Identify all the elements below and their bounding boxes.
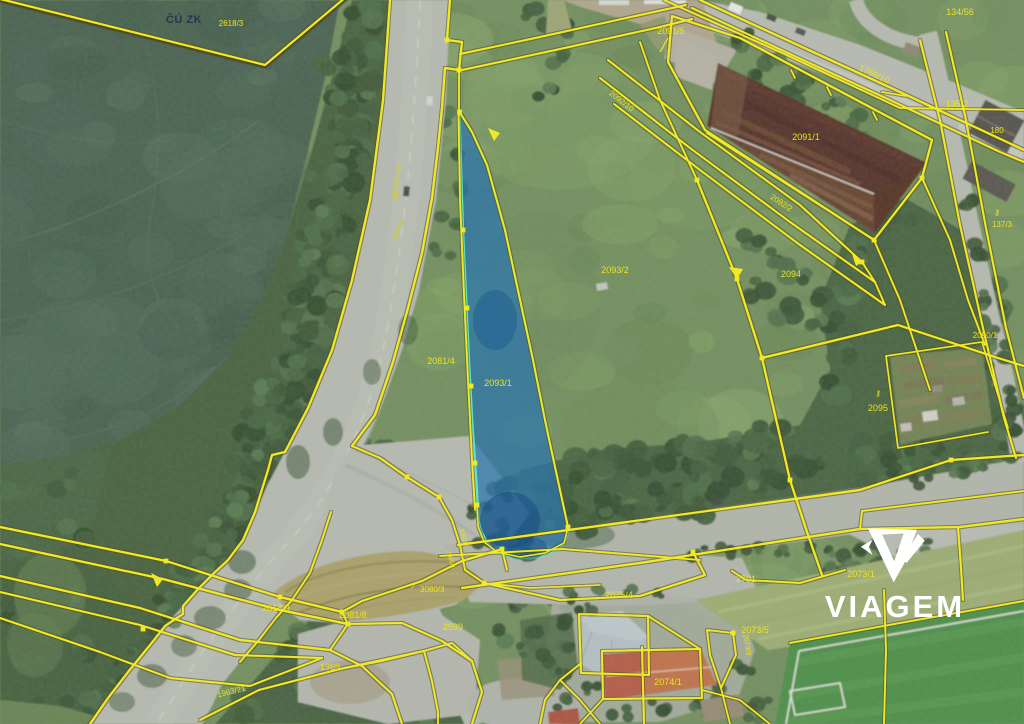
svg-text:2093/1: 2093/1 [484, 378, 512, 388]
svg-text:✓: ✓ [410, 584, 416, 591]
svg-text:134/56: 134/56 [946, 7, 974, 17]
svg-text:135/2: 135/2 [946, 99, 969, 109]
svg-text:2091/1: 2091/1 [792, 132, 820, 142]
svg-text:2091/5: 2091/5 [657, 26, 685, 36]
svg-text:2074/1: 2074/1 [654, 677, 682, 687]
svg-text:180: 180 [990, 126, 1004, 135]
svg-text:2095: 2095 [868, 403, 888, 413]
svg-text:⚷: ⚷ [994, 208, 1000, 217]
svg-text:2075/4: 2075/4 [605, 590, 633, 600]
svg-text:2093/2: 2093/2 [601, 265, 629, 275]
svg-text:VIAGEM: VIAGEM [825, 589, 965, 624]
svg-text:1369: 1369 [320, 662, 340, 672]
svg-text:2701: 2701 [736, 574, 756, 584]
svg-text:137/3: 137/3 [992, 220, 1013, 229]
svg-text:2073/1: 2073/1 [847, 569, 875, 579]
svg-text:2081/4: 2081/4 [427, 356, 455, 366]
svg-text:3080/3: 3080/3 [420, 585, 445, 594]
svg-text:2599: 2599 [443, 622, 463, 632]
svg-text:2618/9: 2618/9 [262, 603, 290, 613]
svg-text:⚷: ⚷ [875, 389, 881, 398]
svg-text:2081/8: 2081/8 [339, 610, 367, 620]
svg-text:ČÚ ZK: ČÚ ZK [166, 13, 202, 26]
svg-text:2618/3: 2618/3 [219, 19, 244, 28]
svg-text:2094: 2094 [781, 269, 801, 279]
svg-text:2090/1: 2090/1 [973, 331, 998, 340]
